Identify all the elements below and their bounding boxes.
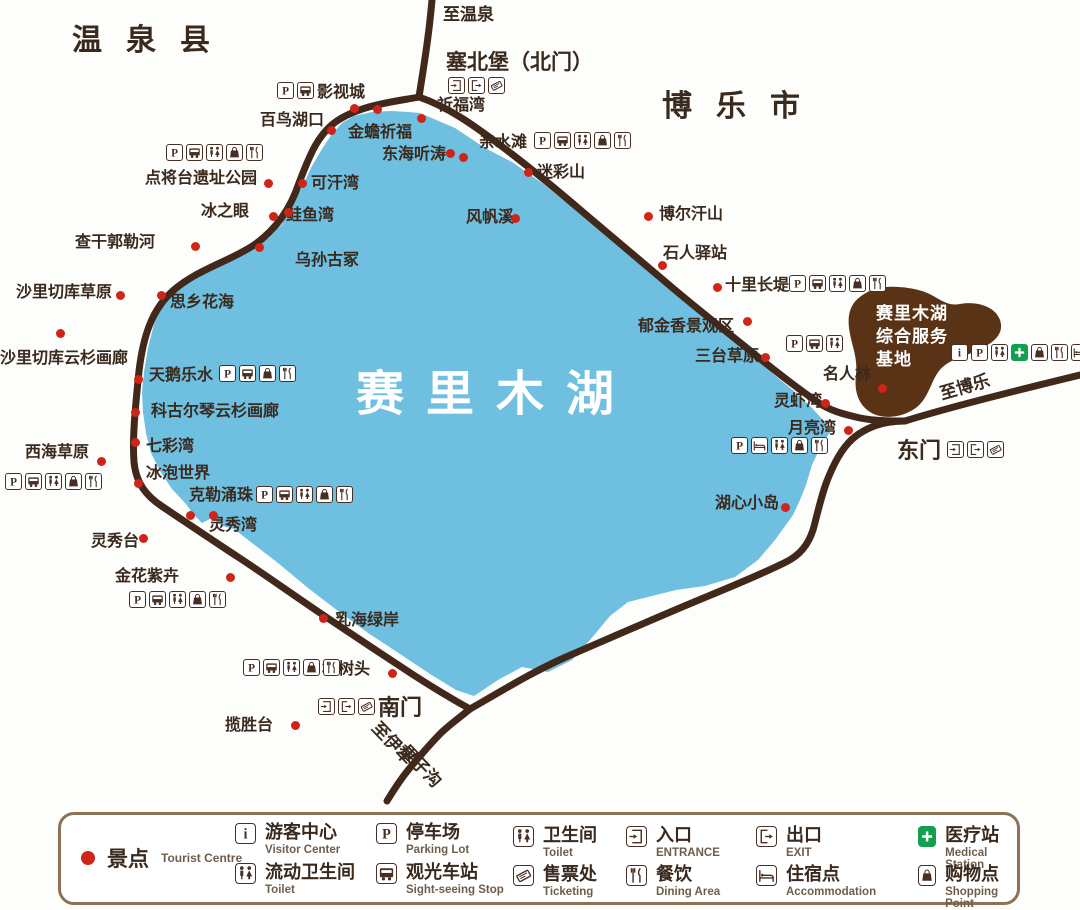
shopping-icon [189,591,206,608]
facility-icon-row [448,77,505,94]
legend-item-text: 餐饮Dining Area [656,865,720,898]
dining-icon [209,591,226,608]
bus-icon [806,335,823,352]
parking-icon [166,144,183,161]
legend-item-text: 观光车站Sight-seeing Stop [406,863,504,896]
road-direction-label: 至温泉 [443,6,494,25]
legend-item-toilet: 流动卫生间Toilet [235,863,355,896]
gate-label: 塞北堡（北门） [446,51,593,74]
parking-icon [789,275,806,292]
dining-icon [1051,344,1068,361]
legend-item-text: 售票处Ticketing [543,865,597,898]
facility-icon-row [243,659,340,676]
dining-icon [614,132,631,149]
legend-item-info: 游客中心Visitor Center [235,823,340,856]
scenic-spot-dot [226,573,235,582]
poi-label: 金花紫卉 [115,568,179,586]
legend-panel: 景点 Tourist Centre 游客中心Visitor Center流动卫生… [58,812,1020,905]
legend-item-text: 卫生间Toilet [543,826,597,859]
toilet-icon [574,132,591,149]
dining-icon [323,659,340,676]
facility-icon-row [219,365,296,382]
parking-icon [277,82,294,99]
parking-icon [534,132,551,149]
dining-icon [279,365,296,382]
parking-icon [219,365,236,382]
scenic-spot-dot [157,291,166,300]
entrance-icon [448,77,465,94]
legend-item-toilet: 卫生间Toilet [513,826,597,859]
legend-item-en: EXIT [786,847,822,859]
poi-label: 东海听涛 [382,146,446,164]
lake-title: 赛里木湖 [356,354,636,424]
poi-label: 风帆溪 [466,209,514,227]
shopping-icon [316,486,333,503]
parking-icon [376,823,397,844]
scenic-spot-dot [644,212,653,221]
legend-item-zh: 购物点 [945,865,1017,884]
poi-label: 沙里切库云杉画廊 [0,350,128,368]
scenic-spot-dot [131,438,140,447]
entrance-icon [626,826,647,847]
scenic-spot-dot [56,329,65,338]
shopping-icon [849,275,866,292]
poi-label: 灵秀台 [91,533,139,551]
shopping-icon [259,365,276,382]
poi-label: 点将台遗址公园 [145,170,257,188]
parking-icon [256,486,273,503]
scenic-spot-dot [131,408,140,417]
shopping-icon [303,659,320,676]
scenic-spot-dot [186,511,195,520]
poi-label: 七彩湾 [146,438,194,456]
bus-icon [809,275,826,292]
poi-label: 西海草原 [25,444,89,462]
scenic-spot-dot [761,353,770,362]
legend-item-en: Ticketing [543,886,597,898]
scenic-spot-dot [821,399,830,408]
medical-icon [1011,344,1028,361]
poi-label: 冰之眼 [201,203,249,221]
legend-item-zh: 住宿点 [786,865,876,884]
toilet-icon [235,863,256,884]
legend-spot-en: Tourist Centre [161,851,242,865]
bus-icon [276,486,293,503]
scenic-spot-dot [459,153,468,162]
scenic-spot-dot [264,179,273,188]
scenic-spot-dot [743,317,752,326]
dining-icon [85,473,102,490]
poi-label: 灵秀湾 [209,517,257,535]
exit-icon [468,77,485,94]
poi-label: 博尔汗山 [659,206,723,224]
facility-icon-row [166,144,263,161]
parking-icon [129,591,146,608]
scenic-spot-dot [417,114,426,123]
legend-item-zh: 流动卫生间 [265,863,355,882]
exit-icon [338,698,355,715]
scenic-spot-dot [781,503,790,512]
shopping-icon [791,437,808,454]
poi-label: 沙里切库草原 [16,284,112,302]
scenic-spot-dot [97,457,106,466]
scenic-spot-dot [291,721,300,730]
parking-icon [971,344,988,361]
poi-label: 克勒涌珠 [189,487,253,505]
legend-spot-entry: 景点 Tourist Centre [81,843,242,873]
ticket-icon [513,865,534,886]
toilet-icon [513,826,534,847]
scenic-spot-dot [284,208,293,217]
facility-icon-row [534,132,631,149]
poi-label: 揽胜台 [225,717,273,735]
legend-item-text: 流动卫生间Toilet [265,863,355,896]
poi-label: 天鹅乐水 [149,367,213,385]
poi-label: 科古尔琴云杉画廊 [151,403,279,421]
poi-label: 名人林 [823,366,871,384]
shopping-icon [65,473,82,490]
legend-item-zh: 出口 [786,826,822,845]
shopping-icon [226,144,243,161]
sayram-lake-tourist-map: 赛里木湖 赛里木湖 综合服务 基地 温泉县博乐市至温泉至博乐至伊犁果子沟塞北堡（… [0,0,1080,910]
poi-label: 迷彩山 [537,164,585,182]
poi-label: 百鸟湖口 [260,112,324,130]
poi-label: 乌孙古冢 [295,252,359,270]
legend-item-en: Toilet [265,884,355,896]
dining-icon [811,437,828,454]
legend-item-en: Sight-seeing Stop [406,884,504,896]
toilet-icon [169,591,186,608]
scenic-spot-dot [191,242,200,251]
poi-label: 灵虾湾 [774,393,822,411]
scenic-spot-dot [139,534,148,543]
poi-label: 三台草原 [695,348,759,366]
toilet-icon [829,275,846,292]
exit-icon [756,826,777,847]
gate-label: 南门 [378,696,422,720]
toilet-icon [206,144,223,161]
ticket-icon [987,441,1004,458]
bus-icon [376,863,397,884]
legend-item-en: ENTRANCE [656,847,720,859]
legend-item-text: 停车场Parking Lot [406,823,469,856]
legend-item-en: Visitor Center [265,844,340,856]
parking-icon [786,335,803,352]
toilet-icon [771,437,788,454]
entrance-icon [318,698,335,715]
scenic-spot-dot [878,384,887,393]
dining-icon [246,144,263,161]
poi-label: 乳海绿岸 [335,612,399,630]
poi-label: 湖心小岛 [715,495,779,513]
legend-item-en: Parking Lot [406,844,469,856]
bus-icon [149,591,166,608]
toilet-icon [826,335,843,352]
parking-icon [731,437,748,454]
region-label: 博乐市 [662,90,824,123]
bus-icon [554,132,571,149]
legend-item-zh: 入口 [656,826,720,845]
toilet-icon [296,486,313,503]
poi-label: 影视城 [317,84,365,102]
legend-item-zh: 售票处 [543,865,597,884]
scenic-spot-dot [255,243,264,252]
scenic-spot-dot [350,104,359,113]
medical-icon [918,826,936,847]
legend-item-en: Shopping Point [945,886,1017,910]
scenic-spot-dot [446,149,455,158]
facility-icon-row [951,344,1080,361]
bed-icon [756,865,777,886]
service-base-label: 赛里木湖 综合服务 基地 [876,303,948,372]
scenic-spot-dot [327,126,336,135]
legend-item-text: 游客中心Visitor Center [265,823,340,856]
scenic-spot-dot-icon [81,851,95,865]
ticket-icon [358,698,375,715]
scenic-spot-dot [373,105,382,114]
legend-item-entrance: 入口ENTRANCE [626,826,720,859]
facility-icon-row [786,335,843,352]
legend-item-bus: 观光车站Sight-seeing Stop [376,863,504,896]
scenic-spot-dot [844,426,853,435]
bed-icon [751,437,768,454]
bus-icon [25,473,42,490]
poi-label: 亲水滩 [479,134,527,152]
legend-item-dining: 餐饮Dining Area [626,865,720,898]
legend-item-ticket: 售票处Ticketing [513,865,597,898]
legend-item-zh: 医疗站 [945,826,1017,845]
legend-item-zh: 餐饮 [656,865,720,884]
facility-icon-row [5,473,102,490]
poi-label: 思乡花海 [170,294,234,312]
poi-label: 冰泡世界 [146,465,210,483]
facility-icon-row [731,437,828,454]
legend-item-en: Dining Area [656,886,720,898]
road-to-wenquan [419,0,432,97]
legend-item-exit: 出口EXIT [756,826,822,859]
legend-item-text: 出口EXIT [786,826,822,859]
legend-item-en: Accommodation [786,886,876,898]
legend-item-text: 购物点Shopping Point [945,865,1017,910]
bus-icon [297,82,314,99]
poi-label: 查干郭勒河 [75,234,155,252]
bus-icon [263,659,280,676]
info-icon [235,823,256,844]
scenic-spot-dot [116,291,125,300]
scenic-spot-dot [134,375,143,384]
bus-icon [239,365,256,382]
dining-icon [336,486,353,503]
legend-item-en: Toilet [543,847,597,859]
scenic-spot-dot [298,179,307,188]
bus-icon [186,144,203,161]
facility-icon-row [789,275,886,292]
legend-item-bed: 住宿点Accommodation [756,865,876,898]
gate-label: 东门 [897,439,941,463]
facility-icon-row [256,486,353,503]
entrance-icon [947,441,964,458]
scenic-spot-dot [511,214,520,223]
poi-label: 月亮湾 [788,420,836,438]
exit-icon [967,441,984,458]
legend-spot-zh: 景点 [107,843,149,873]
scenic-spot-dot [209,511,218,520]
toilet-icon [991,344,1008,361]
scenic-spot-dot [319,614,328,623]
region-label: 温泉县 [72,24,234,57]
legend-item-text: 住宿点Accommodation [786,865,876,898]
poi-label: 鲑鱼湾 [286,207,334,225]
legend-item-zh: 游客中心 [265,823,340,842]
toilet-icon [45,473,62,490]
legend-item-zh: 观光车站 [406,863,504,882]
legend-item-text: 入口ENTRANCE [656,826,720,859]
parking-icon [5,473,22,490]
scenic-spot-dot [713,283,722,292]
shopping-icon [918,865,936,886]
scenic-spot-dot [388,669,397,678]
facility-icon-row [947,441,1004,458]
shopping-icon [1031,344,1048,361]
dining-icon [626,865,647,886]
poi-label: 十里长堤 [725,277,789,295]
legend-item-zh: 卫生间 [543,826,597,845]
facility-icon-row [129,591,226,608]
scenic-spot-dot [524,168,533,177]
scenic-spot-dot [269,212,278,221]
poi-label: 祈福湾 [437,97,485,115]
info-icon [951,344,968,361]
dining-icon [869,275,886,292]
scenic-spot-dot [134,479,143,488]
poi-label: 可汗湾 [311,175,359,193]
poi-label: 金蟾祈福 [348,124,412,142]
scenic-spot-dot [658,261,667,270]
toilet-icon [283,659,300,676]
legend-item-zh: 停车场 [406,823,469,842]
shopping-icon [594,132,611,149]
poi-label: 郁金香景观区 [638,318,734,336]
legend-item-parking: 停车场Parking Lot [376,823,469,856]
ticket-icon [488,77,505,94]
poi-label: 石人驿站 [663,245,727,263]
facility-icon-row [318,698,375,715]
legend-item-shopping: 购物点Shopping Point [918,865,1017,910]
parking-icon [243,659,260,676]
bed-icon [1071,344,1080,361]
facility-icon-row [277,82,314,99]
